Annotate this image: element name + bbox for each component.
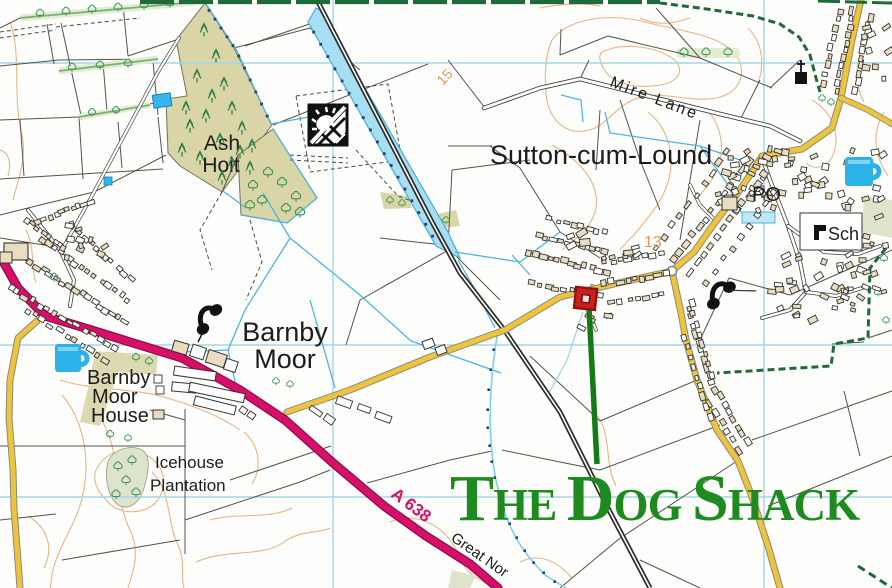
svg-text:Icehouse: Icehouse	[155, 453, 224, 472]
svg-text:House: House	[91, 405, 149, 427]
svg-text:PO: PO	[752, 184, 781, 206]
svg-text:13: 13	[644, 234, 662, 251]
svg-text:Plantation: Plantation	[150, 476, 226, 495]
svg-text:Sutton-cum-Lound: Sutton-cum-Lound	[490, 140, 712, 170]
svg-text:Moor: Moor	[254, 344, 316, 374]
svg-text:Barnby: Barnby	[242, 317, 328, 347]
svg-text:Ash: Ash	[204, 132, 240, 155]
svg-text:Sch: Sch	[828, 224, 859, 244]
